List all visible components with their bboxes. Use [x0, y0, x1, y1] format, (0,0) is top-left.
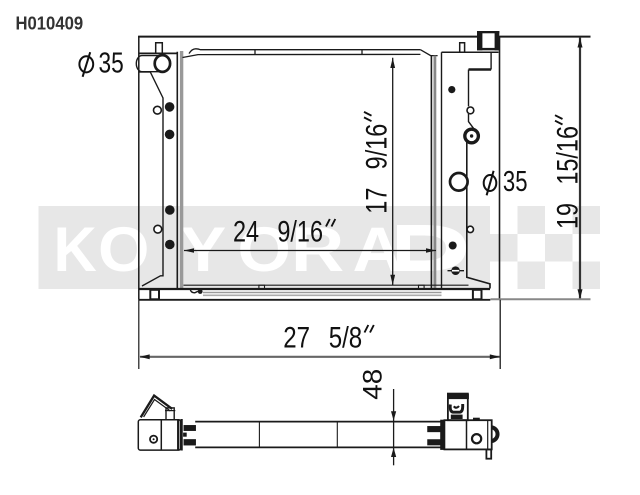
- svg-text:17 9/16: 17 9/16: [361, 124, 394, 214]
- svg-text:27 5/8: 27 5/8: [283, 322, 362, 355]
- svg-text:K: K: [54, 215, 97, 286]
- svg-text:24 9/16: 24 9/16: [233, 216, 323, 249]
- svg-text:H010409: H010409: [16, 13, 84, 34]
- svg-text:48: 48: [358, 369, 388, 400]
- svg-text:35: 35: [99, 47, 124, 79]
- svg-text:19 15/16: 19 15/16: [552, 126, 585, 229]
- svg-text:35: 35: [503, 166, 528, 198]
- svg-text:O: O: [98, 214, 149, 284]
